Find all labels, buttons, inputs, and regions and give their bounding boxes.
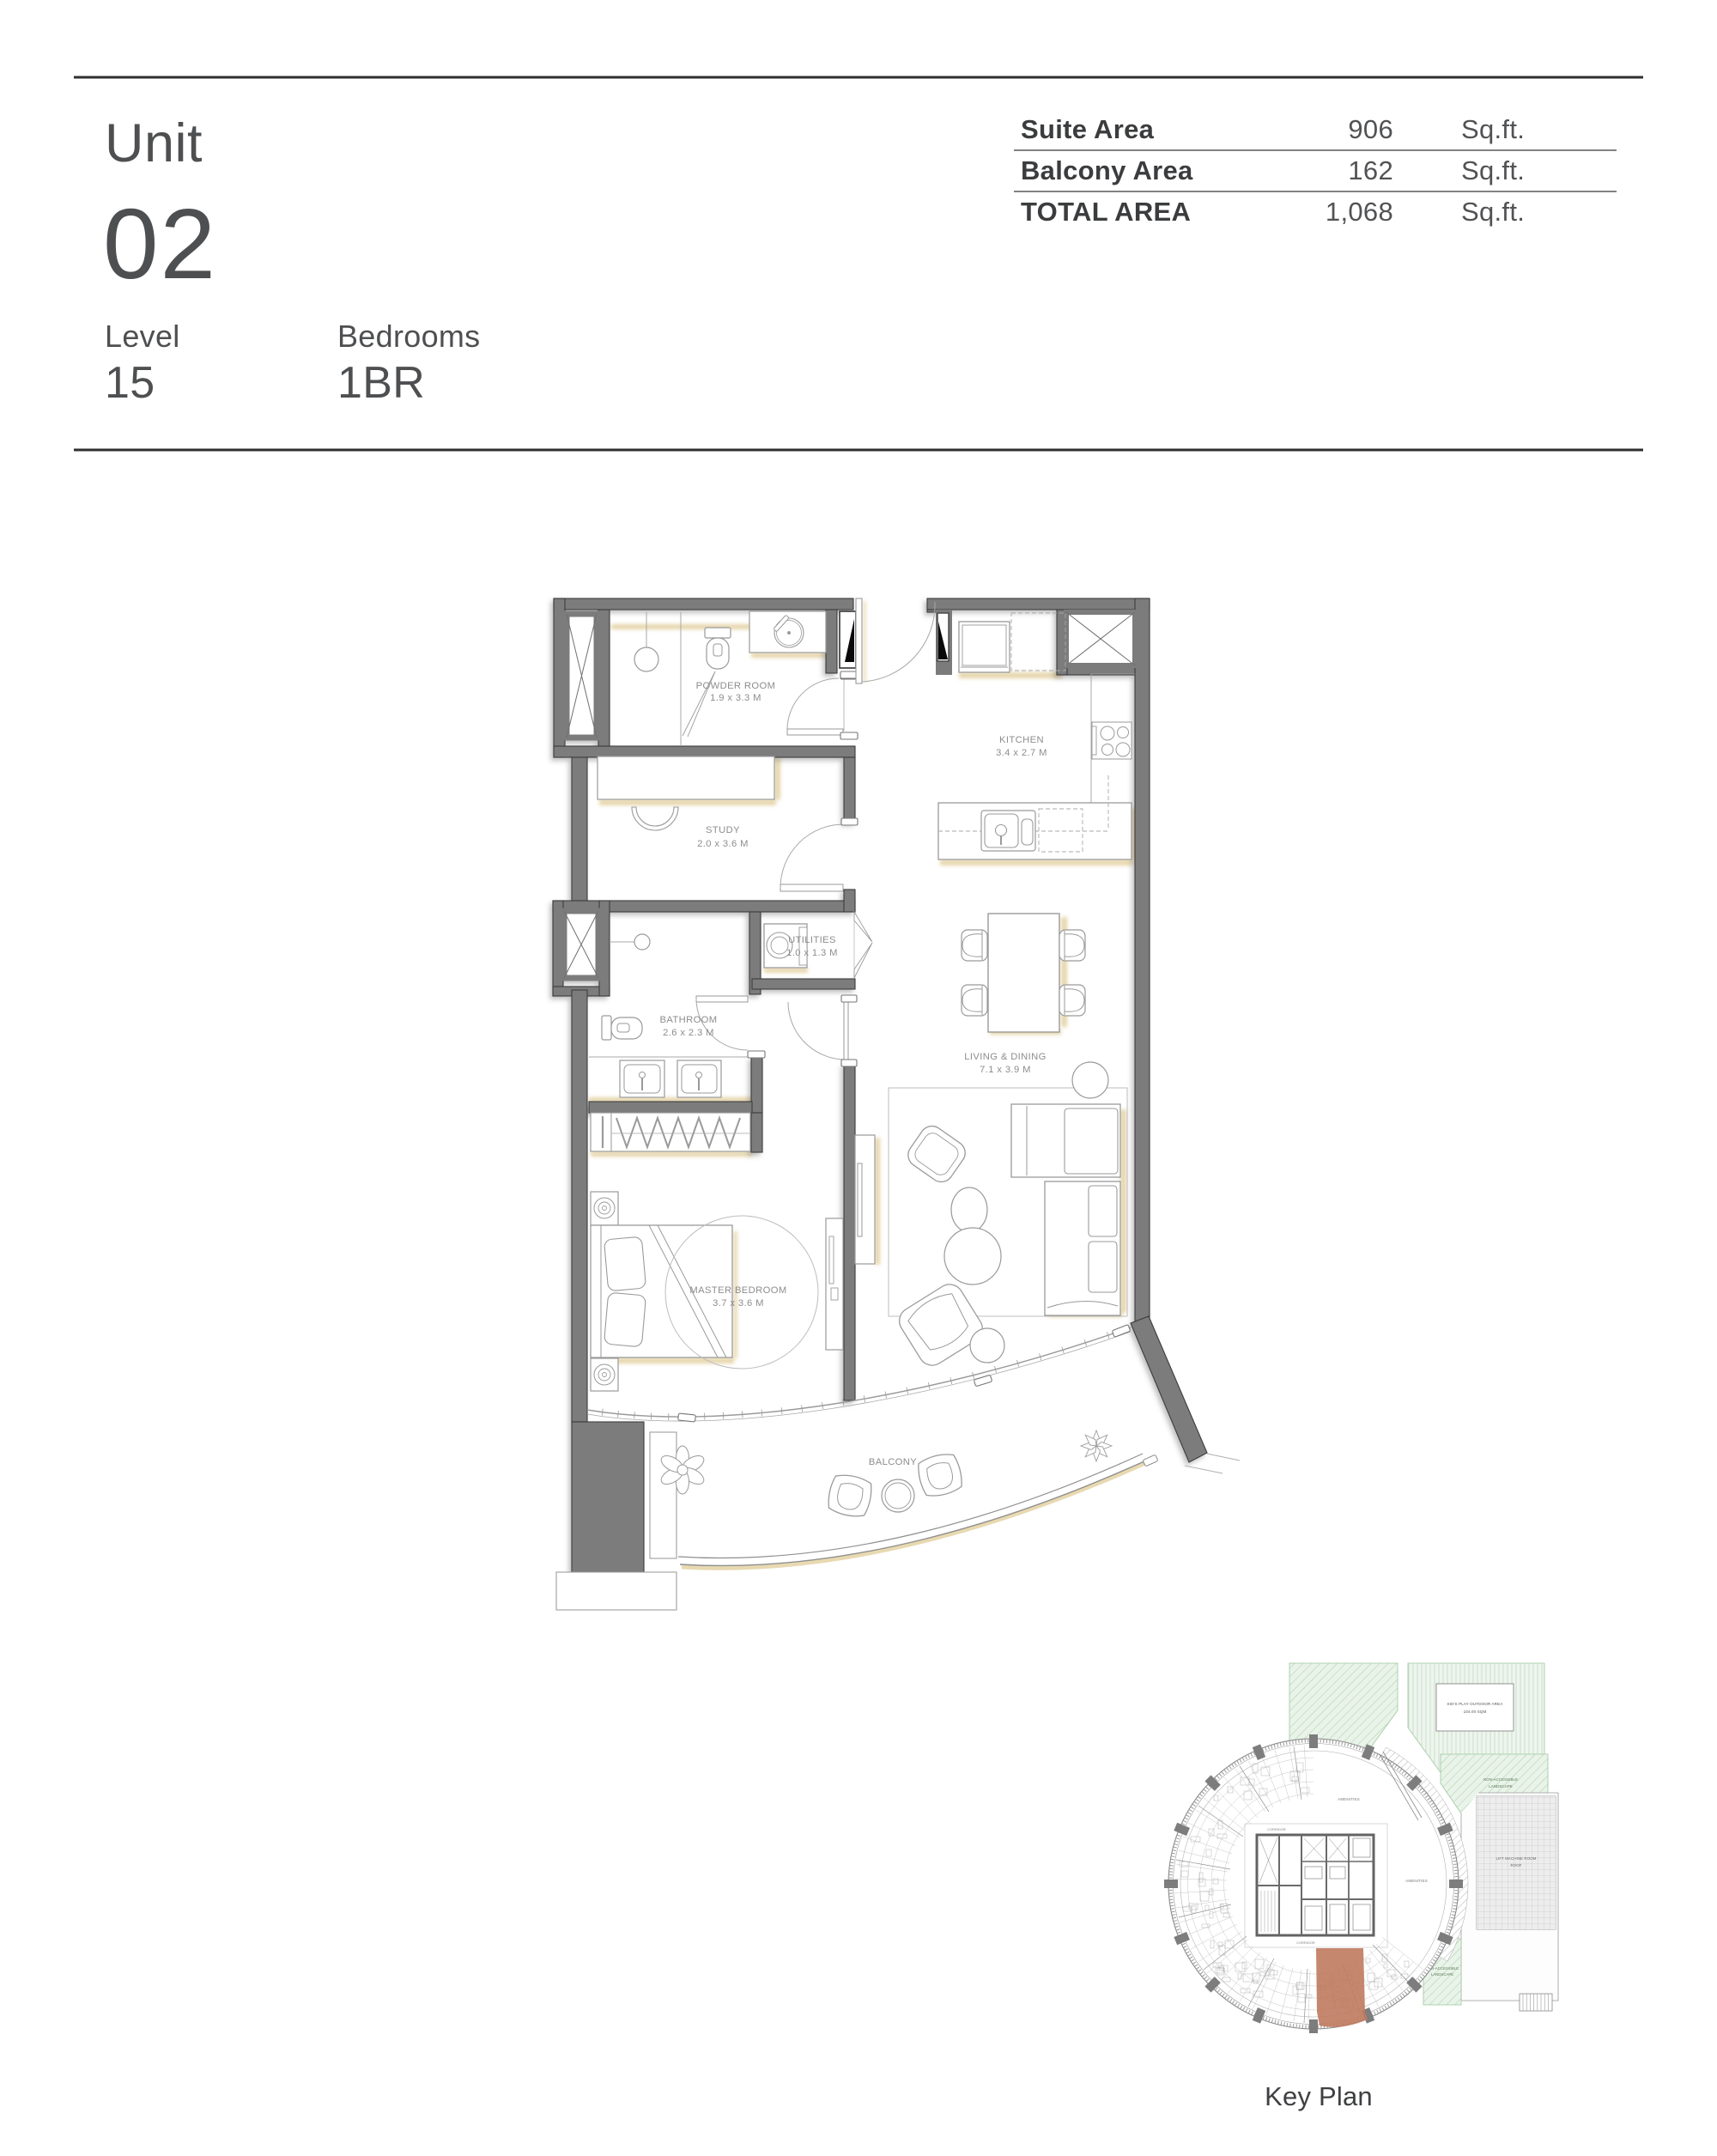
svg-text:LIVING & DINING: LIVING & DINING: [964, 1052, 1047, 1062]
svg-text:KITCHEN: KITCHEN: [999, 735, 1044, 745]
svg-text:NON-ACCESSIBLE: NON-ACCESSIBLE: [1483, 1777, 1518, 1782]
svg-text:AMENITIES: AMENITIES: [1338, 1797, 1360, 1801]
svg-text:Level: Level: [105, 319, 180, 354]
svg-text:1.9 x 3.3 M: 1.9 x 3.3 M: [710, 693, 761, 703]
svg-text:UTILITIES: UTILITIES: [788, 935, 836, 945]
svg-text:104.00 SQM: 104.00 SQM: [1464, 1710, 1487, 1714]
svg-text:1.0 x 1.3 M: 1.0 x 1.3 M: [786, 948, 838, 958]
svg-text:3.7 x 3.6 M: 3.7 x 3.6 M: [713, 1298, 764, 1309]
svg-text:Key Plan: Key Plan: [1265, 2081, 1373, 2111]
svg-text:15: 15: [105, 358, 155, 408]
svg-text:Sq.ft.: Sq.ft.: [1461, 155, 1525, 185]
svg-text:CORRIDOR: CORRIDOR: [1296, 1941, 1315, 1945]
svg-text:BALCONY: BALCONY: [869, 1457, 917, 1467]
svg-text:Suite Area: Suite Area: [1021, 114, 1155, 144]
svg-text:Bedrooms: Bedrooms: [337, 319, 480, 354]
svg-text:BATHROOM: BATHROOM: [659, 1015, 717, 1025]
svg-text:906: 906: [1348, 114, 1393, 144]
svg-text:TOTAL AREA: TOTAL AREA: [1021, 197, 1191, 227]
svg-text:Sq.ft.: Sq.ft.: [1461, 197, 1525, 227]
svg-text:Balcony Area: Balcony Area: [1021, 155, 1193, 185]
svg-text:1,068: 1,068: [1326, 197, 1393, 227]
svg-text:2.6 x 2.3 M: 2.6 x 2.3 M: [663, 1028, 714, 1038]
svg-text:MASTER BEDROOM: MASTER BEDROOM: [689, 1285, 786, 1296]
svg-text:CORRIDOR: CORRIDOR: [1267, 1828, 1286, 1831]
svg-text:LANDSCAPE: LANDSCAPE: [1431, 1972, 1453, 1977]
svg-text:02: 02: [103, 188, 217, 300]
svg-text:AMENITIES: AMENITIES: [1405, 1879, 1428, 1883]
svg-text:ROOF: ROOF: [1510, 1863, 1521, 1868]
svg-text:Unit: Unit: [105, 113, 203, 173]
svg-text:162: 162: [1348, 155, 1393, 185]
svg-text:STUDY: STUDY: [706, 825, 740, 835]
svg-text:LIFT MACHINE ROOM: LIFT MACHINE ROOM: [1496, 1856, 1537, 1861]
svg-text:Sq.ft.: Sq.ft.: [1461, 114, 1525, 144]
svg-text:7.1 x 3.9 M: 7.1 x 3.9 M: [980, 1065, 1031, 1075]
svg-text:1BR: 1BR: [337, 358, 425, 408]
svg-text:2.0 x 3.6 M: 2.0 x 3.6 M: [697, 839, 749, 849]
svg-text:3.4 x 2.7 M: 3.4 x 2.7 M: [996, 748, 1047, 758]
svg-text:LANDSCAPE: LANDSCAPE: [1489, 1784, 1513, 1789]
svg-text:POWDER ROOM: POWDER ROOM: [696, 681, 776, 691]
svg-text:KID'S PLAY OUTDOOR AREA: KID'S PLAY OUTDOOR AREA: [1447, 1702, 1504, 1706]
